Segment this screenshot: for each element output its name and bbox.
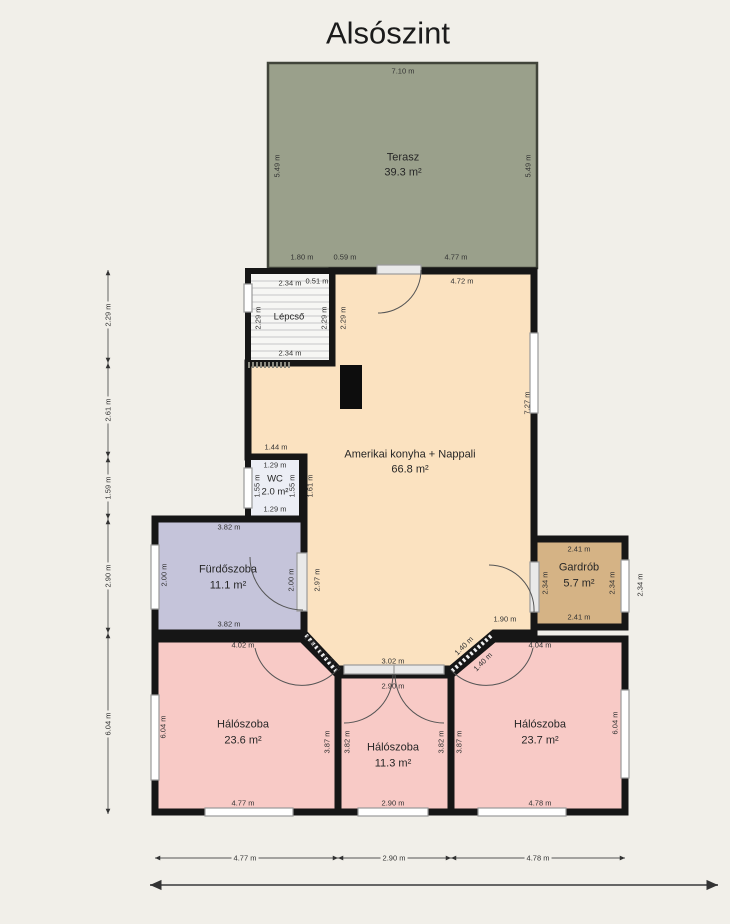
dim-bath-bottom: 3.82 m	[218, 620, 241, 628]
room-label-furdoszoba: Fürdőszoba	[199, 565, 257, 576]
room-area-halo-kozep: 11.3 m²	[375, 759, 411, 770]
dim-rail-l3: 1.59 m	[104, 475, 112, 502]
dim-seg-2: 0.59 m	[334, 253, 357, 261]
room-area-wc: 2.0 m²	[262, 487, 289, 497]
dim-main-top-b: 4.72 m	[451, 277, 474, 285]
dim-rail-b3: 4.78 m	[525, 854, 552, 862]
dim-bl-top: 4.02 m	[232, 641, 255, 649]
room-label-halo-kozep: Hálószoba	[367, 743, 419, 754]
door-gardrob	[530, 562, 539, 612]
window-bed-mid-s	[358, 808, 428, 816]
room-label-nappali: Amerikai konyha + Nappali	[344, 450, 475, 461]
dim-gard-left: 2.34 m	[541, 572, 549, 595]
dim-br-bottom: 4.78 m	[529, 799, 552, 807]
dim-bm-bottom: 2.90 m	[382, 799, 405, 807]
dim-wc-top: 1.29 m	[264, 461, 287, 469]
dim-seg-3: 4.77 m	[445, 253, 468, 261]
dim-stairs-left: 2.29 m	[254, 307, 262, 330]
dim-rail-l5: 6.04 m	[104, 711, 112, 738]
room-label-halo-bal: Hálószoba	[217, 720, 269, 731]
stove	[340, 365, 362, 409]
dim-gard-bottom: 2.41 m	[568, 613, 591, 621]
room-label-lepcso: Lépcső	[274, 312, 305, 322]
dim-bl-right: 3.87 m	[323, 731, 331, 754]
door-entrance	[377, 265, 421, 274]
door-bath	[297, 553, 307, 611]
floor-plan-drawing	[0, 0, 730, 924]
dim-gard-out: 2.34 m	[636, 574, 644, 597]
dim-rail-b2: 2.90 m	[381, 854, 408, 862]
room-area-furdoszoba: 11.1 m²	[210, 581, 246, 592]
dim-bm-left: 3.82 m	[343, 731, 351, 754]
window-gardrob	[621, 560, 629, 612]
dim-stairs-top: 2.34 m	[279, 279, 302, 287]
room-terasz	[268, 63, 537, 268]
dim-bath-left: 2.00 m	[160, 564, 168, 587]
dim-bath-top: 3.82 m	[218, 523, 241, 531]
dim-bath-right-out: 2.97 m	[313, 569, 321, 592]
dim-br-left: 3.87 m	[455, 731, 463, 754]
dim-terrace-left: 5.49 m	[273, 155, 281, 178]
dim-bm-top: 3.02 m	[382, 657, 405, 665]
room-label-gardrob: Gardrób	[559, 563, 599, 574]
dim-wc-bottom: 1.29 m	[264, 505, 287, 513]
dim-bl-left: 6.04 m	[159, 716, 167, 739]
dim-bm-door: 2.90 m	[382, 682, 405, 690]
room-area-halo-jobb: 23.7 m²	[521, 736, 558, 747]
dim-terrace-top: 7.10 m	[392, 67, 415, 75]
room-label-wc: WC	[267, 474, 283, 484]
room-area-nappali: 66.8 m²	[391, 465, 428, 476]
room-furdoszoba	[155, 519, 304, 633]
dim-main-bottom-right: 1.90 m	[494, 615, 517, 623]
room-label-terasz: Terasz	[387, 153, 419, 164]
dim-br-right: 6.04 m	[611, 712, 619, 735]
dim-wc-side-l: 1.55 m	[253, 475, 261, 498]
dim-wc-side-r: 1.55 m	[288, 475, 296, 498]
dim-rail-l2: 2.61 m	[104, 397, 112, 424]
dim-terrace-right: 5.49 m	[524, 155, 532, 178]
dim-main-above-wc: 1.44 m	[265, 443, 288, 451]
room-area-terasz: 39.3 m²	[384, 168, 421, 179]
dim-bl-bottom: 4.77 m	[232, 799, 255, 807]
window-bath	[151, 545, 159, 609]
dim-main-right: 7.27 m	[523, 392, 531, 415]
dim-br-top: 4.04 m	[529, 641, 552, 649]
dim-bm-right: 3.82 m	[437, 731, 445, 754]
dim-stairs-bottom: 2.34 m	[279, 349, 302, 357]
room-area-halo-bal: 23.6 m²	[224, 736, 261, 747]
dim-seg-1: 1.80 m	[291, 253, 314, 261]
dim-rail-l4: 2.90 m	[104, 563, 112, 590]
dim-bath-door: 2.00 m	[287, 569, 295, 592]
dim-main-top-a: 0.51 m	[306, 277, 329, 285]
dim-rail-b1: 4.77 m	[232, 854, 259, 862]
dim-gard-top: 2.41 m	[568, 545, 591, 553]
dim-rail-l1: 2.29 m	[104, 302, 112, 329]
window-bed-right-e	[621, 690, 629, 778]
floor-plan: Alsószint Terasz 39.3 m² Lépcső Amerikai…	[0, 0, 730, 924]
dim-stairs-right: 2.29 m	[320, 307, 328, 330]
window-bed-left-s	[205, 808, 293, 816]
page-title: Alsószint	[326, 18, 450, 49]
window-wc	[244, 468, 252, 508]
window-bed-right-s	[478, 808, 566, 816]
dim-wc-right-out: 1.61 m	[306, 475, 314, 498]
room-label-halo-jobb: Hálószoba	[514, 720, 566, 731]
window-stairs	[244, 284, 252, 312]
dim-gard-right: 2.34 m	[608, 572, 616, 595]
room-area-gardrob: 5.7 m²	[563, 579, 594, 590]
dim-main-left: 2.29 m	[339, 307, 347, 330]
